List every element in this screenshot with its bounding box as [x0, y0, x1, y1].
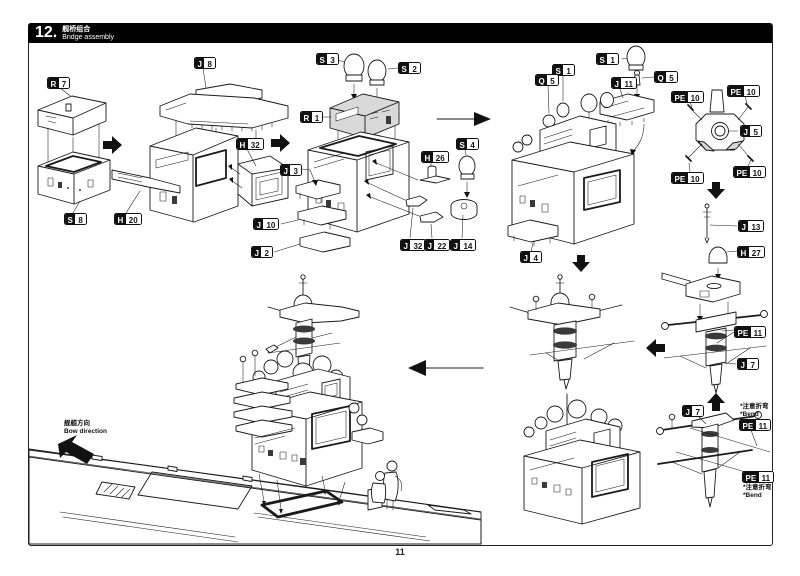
part-label-j8: J8	[194, 57, 216, 69]
step-arrow-left-2	[408, 360, 483, 376]
part-letter: J	[451, 240, 460, 250]
part-letter: PE	[728, 86, 744, 96]
part-number: 11	[751, 327, 765, 337]
part-label-pe10b: PE10	[727, 85, 760, 97]
part-label-j22: J22	[424, 239, 450, 251]
part-number: 7	[747, 359, 757, 369]
part-number: 14	[460, 240, 475, 250]
part-number: 1	[563, 65, 573, 75]
part-label-pe10d: PE10	[733, 166, 766, 178]
part-number: 11	[621, 78, 635, 88]
page-number: 11	[0, 547, 800, 557]
bend-note-top: *注意折弯 *Bend	[740, 403, 769, 418]
bend-note-en: *Bend	[740, 411, 769, 419]
bend-note-en: *Bend	[743, 492, 772, 500]
part-number: 5	[750, 126, 760, 136]
part-letter: J	[741, 126, 750, 136]
part-letter: H	[115, 214, 126, 224]
step-header: 12. 舰桥组合 Bridge assembly	[28, 23, 772, 43]
part-letter: J	[401, 240, 410, 250]
part-letter: S	[457, 139, 467, 149]
part-label-j13: J13	[738, 220, 764, 232]
part-letter: PE	[735, 327, 751, 337]
part-letter: J	[195, 58, 204, 68]
bend-note-bottom: *注意折弯 *Bend	[743, 484, 772, 499]
part-letter: H	[422, 152, 433, 162]
part-number: 13	[748, 221, 763, 231]
part-label-j3: J3	[280, 164, 302, 176]
part-letter: H	[237, 139, 248, 149]
part-letter: R	[301, 112, 312, 122]
part-number: 4	[467, 139, 477, 149]
part-number: 3	[327, 54, 337, 64]
part-label-pe10c: PE10	[671, 172, 704, 184]
part-letter: J	[281, 165, 290, 175]
part-label-j7b: J7	[682, 405, 704, 417]
part-letter: J	[425, 240, 434, 250]
part-label-s1b: S1	[596, 53, 619, 65]
part-letter: J	[612, 78, 621, 88]
bow-direction-arrow	[58, 435, 94, 464]
part-letter: PE	[672, 173, 688, 183]
part-number: 11	[756, 420, 770, 430]
part-letter: J	[521, 252, 530, 262]
part-label-h26: H26	[421, 151, 449, 163]
mast-to-island-step	[510, 275, 640, 524]
part-label-s3: S3	[316, 53, 339, 65]
part-number: 4	[530, 252, 540, 262]
part-number: 27	[749, 247, 764, 257]
part-number: 20	[126, 214, 141, 224]
instruction-manual-page: { "header": { "step_number": "12.", "tit…	[0, 0, 800, 576]
part-letter: Q	[536, 75, 547, 85]
part-letter: J	[254, 219, 263, 229]
part-number: 10	[263, 219, 278, 229]
part-number: 2	[261, 247, 271, 257]
bend-note-zh: *注意折弯	[740, 403, 769, 411]
bow-direction-note: 舰艏方向 Bow direction	[64, 420, 107, 435]
part-letter: Q	[655, 72, 666, 82]
part-number: 10	[688, 173, 703, 183]
bow-note-en: Bow direction	[64, 428, 107, 436]
part-number: 5	[547, 75, 557, 85]
step-arrow-right-2	[271, 134, 290, 152]
part-number: 32	[248, 139, 263, 149]
assembly-illustration	[0, 0, 800, 576]
part-number: 22	[434, 240, 449, 250]
part-label-s2: S2	[398, 62, 421, 74]
part-letter: J	[252, 247, 261, 257]
part-letter: PE	[734, 167, 750, 177]
part-letter: J	[738, 359, 747, 369]
bow-note-zh: 舰艏方向	[64, 420, 107, 428]
part-label-q5a: Q5	[535, 74, 559, 86]
step-title-en: Bridge assembly	[62, 34, 114, 42]
part-letter: J	[739, 221, 748, 231]
crew-figures	[368, 461, 402, 510]
part-label-pe10a: PE10	[671, 91, 704, 103]
part-label-j11: J11	[611, 77, 637, 89]
part-letter: R	[48, 78, 59, 88]
part-label-j32: J32	[400, 239, 426, 251]
part-label-s4: S4	[456, 138, 479, 150]
part-letter: PE	[740, 420, 756, 430]
step1-parts-r7-s8	[38, 88, 110, 213]
part-label-pe11b: PE11	[739, 419, 771, 431]
part-letter: H	[738, 247, 749, 257]
step-arrow-left-1	[646, 339, 665, 357]
part-label-h32: H32	[236, 138, 264, 150]
part-label-q5b: Q5	[654, 71, 678, 83]
step-arrow-right-3	[437, 112, 491, 126]
part-letter: S	[399, 63, 409, 73]
part-number: 26	[433, 152, 448, 162]
part-number: 1	[607, 54, 617, 64]
part-label-j4: J4	[520, 251, 542, 263]
part-letter: PE	[743, 472, 759, 482]
part-number: 8	[204, 58, 214, 68]
part-label-pe11a: PE11	[734, 326, 766, 338]
part-number: 10	[688, 92, 703, 102]
step-arrow-right-1	[103, 136, 122, 154]
step-arrow-down-2	[707, 182, 725, 199]
part-number: 11	[759, 472, 773, 482]
part-number: 7	[692, 406, 702, 416]
part-number: 10	[750, 167, 765, 177]
part-letter: S	[317, 54, 327, 64]
part-label-j10: J10	[253, 218, 279, 230]
part-number: 1	[312, 112, 322, 122]
part-number: 2	[409, 63, 419, 73]
part-number: 5	[666, 72, 676, 82]
part-label-h20: H20	[114, 213, 142, 225]
part-number: 8	[75, 214, 85, 224]
part-label-r7: R7	[47, 77, 70, 89]
step-title-zh: 舰桥组合	[62, 26, 114, 34]
part-number: 10	[744, 86, 759, 96]
part-label-pe11c: PE11	[742, 471, 774, 483]
part-letter: S	[65, 214, 75, 224]
bend-note-zh: *注意折弯	[743, 484, 772, 492]
step-titles: 舰桥组合 Bridge assembly	[62, 26, 114, 41]
step-number: 12.	[35, 23, 57, 43]
part-label-j14: J14	[450, 239, 476, 251]
part-label-j5: J5	[740, 125, 762, 137]
part-label-j7a: J7	[737, 358, 759, 370]
part-letter: S	[597, 54, 607, 64]
part-label-s8: S8	[64, 213, 87, 225]
step-arrow-down-1	[572, 255, 590, 272]
step-arrow-up-1	[707, 393, 725, 411]
part-number: 3	[290, 165, 300, 175]
part-number: 7	[59, 78, 69, 88]
part-label-j2: J2	[251, 246, 273, 258]
part-letter: PE	[672, 92, 688, 102]
part-label-r1: R1	[300, 111, 323, 123]
part-label-h27: H27	[737, 246, 765, 258]
part-letter: J	[683, 406, 692, 416]
